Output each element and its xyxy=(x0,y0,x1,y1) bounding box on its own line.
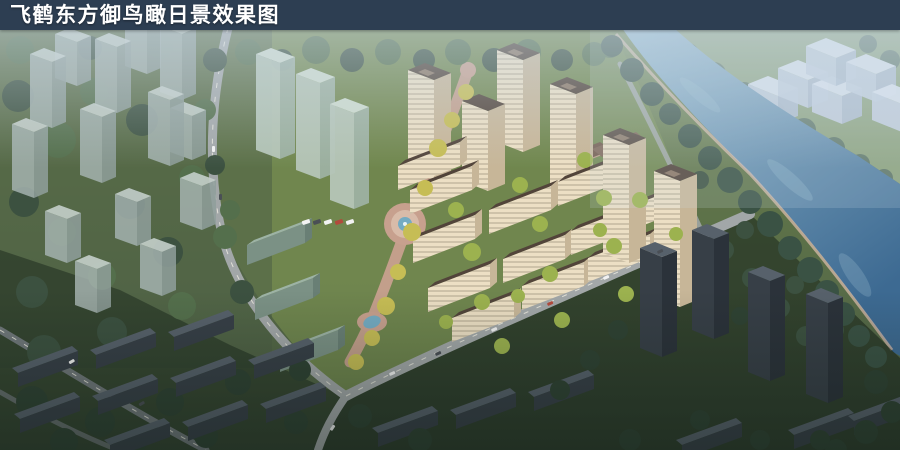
title-bar: 飞鹤东方御鸟瞰日景效果图 xyxy=(0,0,900,30)
aerial-rendering xyxy=(0,0,900,450)
title-text: 飞鹤东方御鸟瞰日景效果图 xyxy=(10,5,280,26)
screenshot: 飞鹤东方御鸟瞰日景效果图 xyxy=(0,0,900,450)
